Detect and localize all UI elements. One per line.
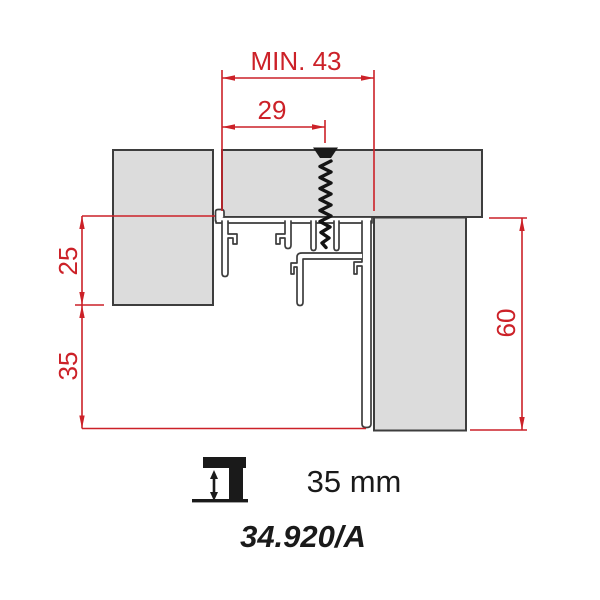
track-profile xyxy=(216,210,373,428)
arrow-left xyxy=(222,75,235,80)
arrow-right xyxy=(312,124,325,129)
arrow-up xyxy=(519,218,524,231)
icon-top-bar xyxy=(203,457,246,468)
part-number-label: 34.920/A xyxy=(240,519,366,554)
dim-label-35: 35 xyxy=(53,352,83,381)
profile-screw-boss-left xyxy=(311,221,316,251)
dim-label-60: 60 xyxy=(491,309,521,338)
icon-baseline xyxy=(192,499,248,502)
technical-drawing: MIN. 43 29 25 35 60 35 mm 34.920/ xyxy=(0,0,600,600)
dim-label-29: 29 xyxy=(258,95,287,125)
arrow-right xyxy=(361,75,374,80)
arrow-up xyxy=(79,305,84,318)
icon-arrow-up-head xyxy=(210,470,218,479)
dim-label-min43: MIN. 43 xyxy=(250,46,341,76)
profile-top-plate xyxy=(216,217,372,223)
height-adjust-double-arrow-icon xyxy=(192,457,248,502)
arrow-down xyxy=(79,416,84,429)
height-value-label: 35 mm xyxy=(307,464,402,499)
arrow-down xyxy=(79,292,84,305)
arrow-left xyxy=(222,124,235,129)
profile-screw-boss-right xyxy=(334,221,339,251)
profile-middle-wall xyxy=(276,221,291,249)
profile-left-wall xyxy=(222,221,237,277)
left-panel xyxy=(113,150,213,305)
top-board xyxy=(222,150,482,217)
drawing-canvas: MIN. 43 29 25 35 60 35 mm 34.920/ xyxy=(0,0,600,600)
profile-fascia-wall xyxy=(354,221,371,428)
icon-vertical-bar xyxy=(229,468,243,501)
arrow-up xyxy=(79,216,84,229)
right-panel xyxy=(374,218,466,431)
dim-label-25: 25 xyxy=(53,247,83,276)
profile-web-and-hanging-wall xyxy=(291,253,362,306)
arrow-down xyxy=(519,417,524,430)
